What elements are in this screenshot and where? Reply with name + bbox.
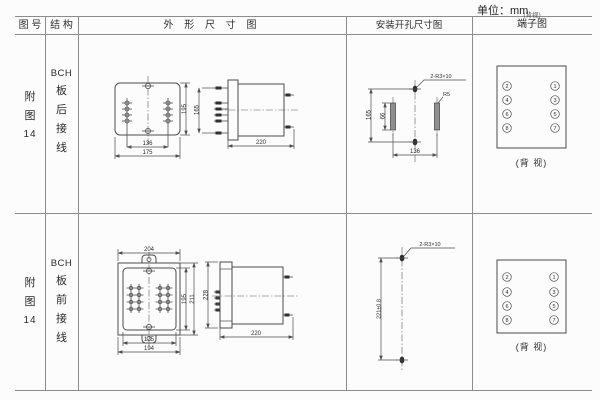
- row2-structure: BCH 板 前 接 线: [45, 213, 78, 390]
- dim-221: 221±0.8: [377, 299, 383, 319]
- dim-195: 195: [182, 103, 188, 114]
- row1-structure-line: 线: [56, 143, 67, 154]
- header-terminal-diagram: 端子图: [472, 20, 592, 30]
- dim-204: 204: [144, 247, 155, 253]
- row2-structure-line: 板: [56, 276, 67, 287]
- dim-66: 66: [381, 112, 387, 119]
- terminal-1: 1: [553, 84, 556, 90]
- dim-165: 165: [367, 109, 373, 120]
- row1-structure-line: 接: [56, 124, 67, 135]
- row1-install-drawing: 165 66 136 2-R3×10 R5: [346, 34, 472, 213]
- row1-figure-no: 附 图 14: [15, 26, 45, 205]
- row2-figure-char: 附: [25, 278, 36, 289]
- terminal-4: 4: [505, 98, 508, 104]
- dim-136: 136: [410, 149, 421, 155]
- table-bottom-border: [15, 390, 592, 391]
- row1-figure-number: 14: [23, 130, 36, 140]
- label-holes: 2-R3×10: [430, 74, 451, 80]
- terminal-7: 7: [552, 318, 555, 324]
- terminal-4: 4: [505, 290, 508, 296]
- row1-structure: BCH 板 后 接 线: [45, 22, 78, 201]
- row1-figure-char: 图: [25, 111, 36, 122]
- dim-211: 211: [190, 294, 196, 304]
- terminal-6: 6: [505, 112, 508, 118]
- row1-side-view: 165 220: [195, 80, 300, 149]
- dim-220: 220: [256, 140, 267, 146]
- terminal-3: 3: [553, 98, 556, 104]
- row2-structure-line: BCH: [51, 259, 73, 269]
- dim-195: 195: [182, 293, 188, 304]
- dim-165: 165: [195, 104, 201, 115]
- terminal-5: 5: [552, 304, 555, 310]
- row1-structure-line: 板: [56, 86, 67, 97]
- rear-view-caption: (背 视): [516, 157, 548, 168]
- header-install-drawing: 安装开孔尺寸图: [346, 21, 472, 31]
- dim-136: 136: [142, 141, 153, 147]
- row1-front-view: 136 175 195: [115, 76, 190, 159]
- row2-structure-line: 线: [56, 333, 67, 344]
- terminal-2: 2: [505, 84, 508, 90]
- row2-figure-number: 14: [23, 316, 36, 326]
- label-radius: R5: [443, 92, 450, 98]
- dim-194: 194: [144, 346, 155, 352]
- row1-structure-line: BCH: [51, 69, 73, 79]
- terminal-8: 8: [505, 318, 508, 324]
- row1-structure-line: 后: [56, 105, 67, 116]
- label-holes: 2-R3×10: [419, 242, 440, 248]
- terminal-circles: 2 4 6 8 1 3 5 7: [503, 273, 559, 325]
- right-slot: [435, 97, 440, 136]
- terminal-8: 8: [505, 126, 508, 132]
- terminal-2: 2: [505, 275, 508, 281]
- terminal-3: 3: [552, 290, 555, 296]
- row2-front-view: 204 195 211 175 194: [118, 247, 198, 355]
- terminal-5: 5: [553, 112, 556, 118]
- row2-figure-no: 附 图 14: [15, 213, 45, 390]
- dim-228: 228: [204, 289, 210, 300]
- row2-terminal-diagram: 2 4 6 8 1 3 5 7 (背 视): [472, 213, 592, 390]
- row1-terminal-diagram: 2 4 6 8 1 3 5 7 (背 视): [472, 34, 592, 213]
- document-page: 单位：mm 图 号 结 构 外 形 尺 寸 图 安装开孔尺寸图 (背视) 端子图…: [0, 0, 600, 400]
- row2-outline-drawing: 204 195 211 175 194 228: [78, 213, 346, 390]
- row1-figure-char: 附: [25, 92, 36, 103]
- row2-install-drawing: 221±0.8 2-R3×10: [346, 213, 472, 390]
- terminal-6: 6: [505, 304, 508, 310]
- terminal-circles: 2 4 6 8 1 3 5 7: [503, 82, 560, 133]
- rear-view-caption: (背 视): [516, 341, 548, 352]
- terminal-7: 7: [553, 126, 556, 132]
- header-outline-drawing: 外 形 尺 寸 图: [78, 21, 346, 31]
- row2-side-view: 228 220: [204, 262, 300, 340]
- row2-structure-line: 前: [56, 295, 67, 306]
- row2-figure-char: 图: [25, 297, 36, 308]
- dim-220: 220: [251, 331, 262, 337]
- dim-175: 175: [142, 150, 153, 156]
- terminal-1: 1: [552, 275, 555, 281]
- left-slot: [391, 97, 396, 136]
- row2-structure-line: 接: [56, 314, 67, 325]
- dim-175: 175: [144, 337, 155, 343]
- row1-outline-drawing: 136 175 195 165: [78, 34, 346, 213]
